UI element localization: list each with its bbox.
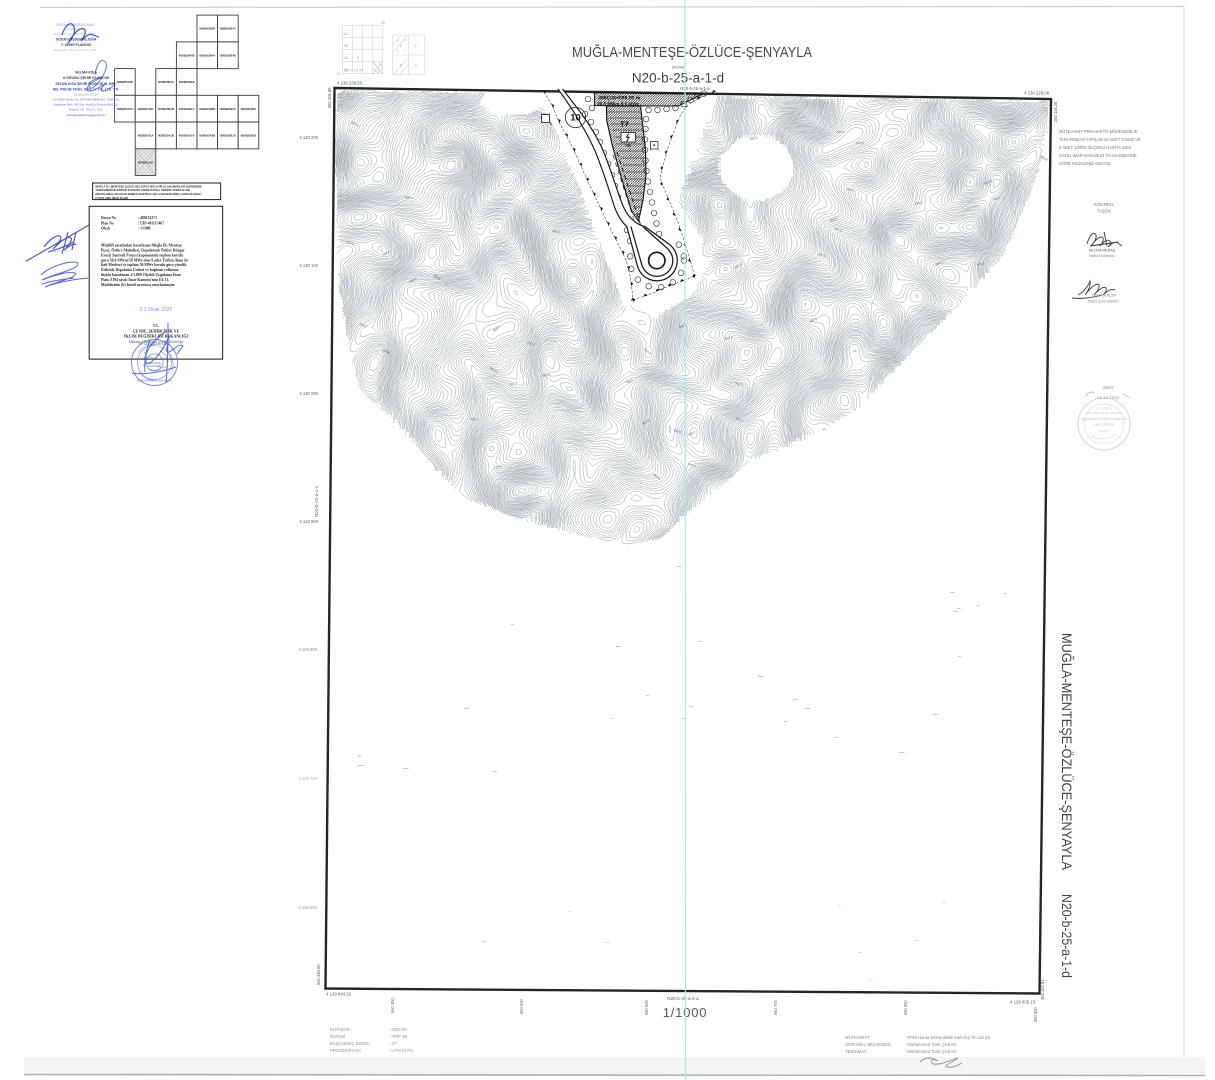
svg-text:GÖRE İNCELENDİ ONAYDI.: GÖRE İNCELENDİ ONAYDI. bbox=[1059, 161, 1112, 166]
svg-text:Harita Mühendisi: Harita Mühendisi bbox=[1089, 254, 1115, 258]
svg-text:6 ADET 1/5000 ÖLÇEKLİ: 6 ADET 1/5000 ÖLÇEKLİ HARİTA 3194 bbox=[1059, 145, 1132, 150]
svg-text:Genel Sekreter: Genel Sekreter bbox=[1093, 423, 1115, 427]
svg-text:MÜTEAHHİT PPM HARİTA MÜH: MÜTEAHHİT PPM HARİTA MÜHENDİSLİK bbox=[1059, 129, 1138, 134]
svg-text:MUĞLA: MUĞLA bbox=[1099, 428, 1109, 433]
svg-text:TASDİK: TASDİK bbox=[1097, 209, 1112, 214]
svg-text:TARAFINDAN YAPILAN 30 AD: TARAFINDAN YAPILAN 30 ADET 1/1000 VE bbox=[1059, 137, 1141, 142]
svg-text:ONAY: ONAY bbox=[1102, 385, 1114, 390]
svg-text:Ali Ümit MERAŞ: Ali Ümit MERAŞ bbox=[1089, 249, 1116, 253]
svg-text:Büyükşehir Belediye Başkanı a.: Büyükşehir Belediye Başkanı a. bbox=[1082, 417, 1127, 421]
svg-text:KONTROL: KONTROL bbox=[1094, 202, 1115, 207]
svg-text:BÜYÜKŞEHİR BELEDİYESİ: BÜYÜKŞEHİR BELEDİYESİ bbox=[1086, 410, 1123, 415]
svg-text:SAYILI İMAR KANUNUN 7/A: SAYILI İMAR KANUNUN 7/A MADDESİNE bbox=[1059, 153, 1137, 158]
svg-text:ÜNAL GENÇER: ÜNAL GENÇER bbox=[1092, 294, 1117, 298]
svg-text:Harita Şube Müdürü: Harita Şube Müdürü bbox=[1088, 300, 1118, 304]
svg-text:T.C. MUĞLA: T.C. MUĞLA bbox=[1096, 406, 1112, 411]
svg-text:12.12.2024: 12.12.2024 bbox=[1097, 395, 1120, 400]
